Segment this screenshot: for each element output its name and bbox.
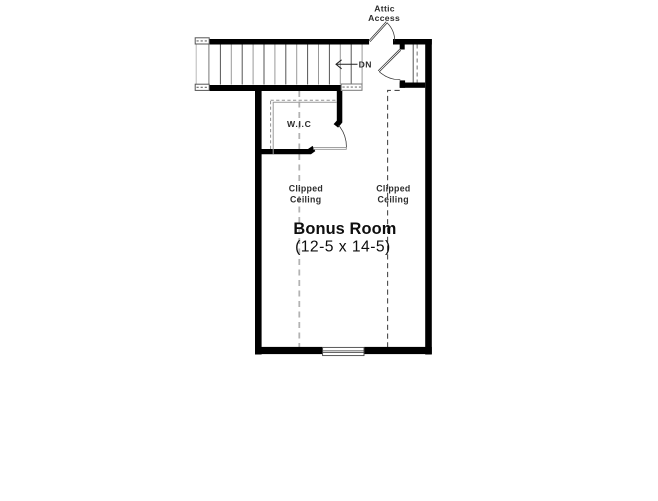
svg-text:DN: DN	[359, 60, 372, 70]
svg-text:Access: Access	[368, 13, 400, 23]
svg-text:W.I.C: W.I.C	[287, 119, 312, 129]
svg-text:Bonus Room: Bonus Room	[293, 220, 396, 238]
svg-text:Ceiling: Ceiling	[290, 195, 321, 205]
svg-text:Ceiling: Ceiling	[377, 195, 408, 205]
svg-text:Clipped: Clipped	[289, 183, 323, 193]
svg-text:Clipped: Clipped	[376, 183, 410, 193]
svg-text:(12-5 x 14-5): (12-5 x 14-5)	[295, 238, 391, 255]
